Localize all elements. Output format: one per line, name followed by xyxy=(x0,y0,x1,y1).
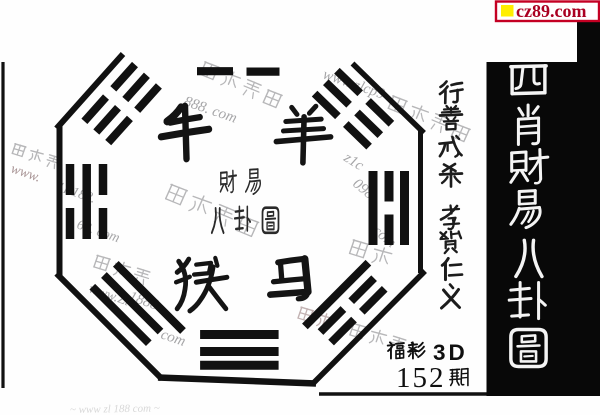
svg-text:cz89.com: cz89.com xyxy=(516,1,586,21)
svg-text:152: 152 xyxy=(396,362,446,394)
svg-text:~ www zl 188 com ~: ~ www zl 188 com ~ xyxy=(70,402,160,415)
